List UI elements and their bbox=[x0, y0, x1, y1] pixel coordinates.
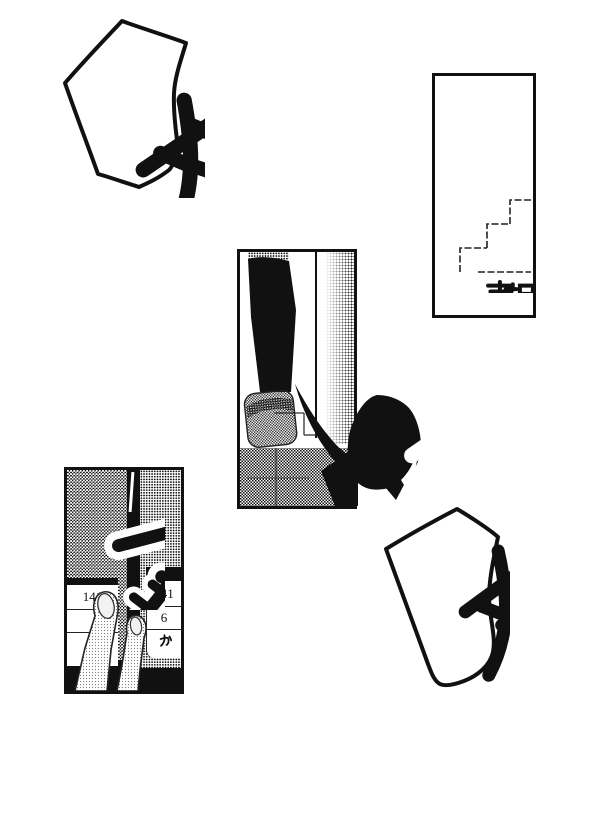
sfx-bubble-katsun-bottom: カツン bbox=[375, 500, 510, 695]
sfx-blob-gii bbox=[280, 378, 440, 513]
sfx-sutsu bbox=[80, 495, 165, 610]
stairs-diagram bbox=[443, 175, 533, 293]
bookshelf-sign-card: 書架 bbox=[443, 175, 533, 293]
sfx-bubble-katsun-top: カツン bbox=[55, 8, 205, 198]
sfx-sutsu-text: スッ bbox=[0, 0, 1, 1]
sfx-bubble-katsun-bottom-art bbox=[375, 500, 510, 695]
panel-bookshelf-sign: 書架 bbox=[432, 73, 536, 318]
sfx-gii-text: ギイ bbox=[0, 0, 1, 1]
sfx-bubble-katsun-top-art bbox=[55, 8, 205, 198]
manga-page: カツン 書架 bbox=[0, 0, 600, 835]
bookshelf-sign-glyphs bbox=[488, 282, 533, 293]
middle-finger bbox=[117, 615, 146, 691]
stairs-lines bbox=[460, 200, 533, 272]
leg-sock bbox=[248, 257, 296, 392]
